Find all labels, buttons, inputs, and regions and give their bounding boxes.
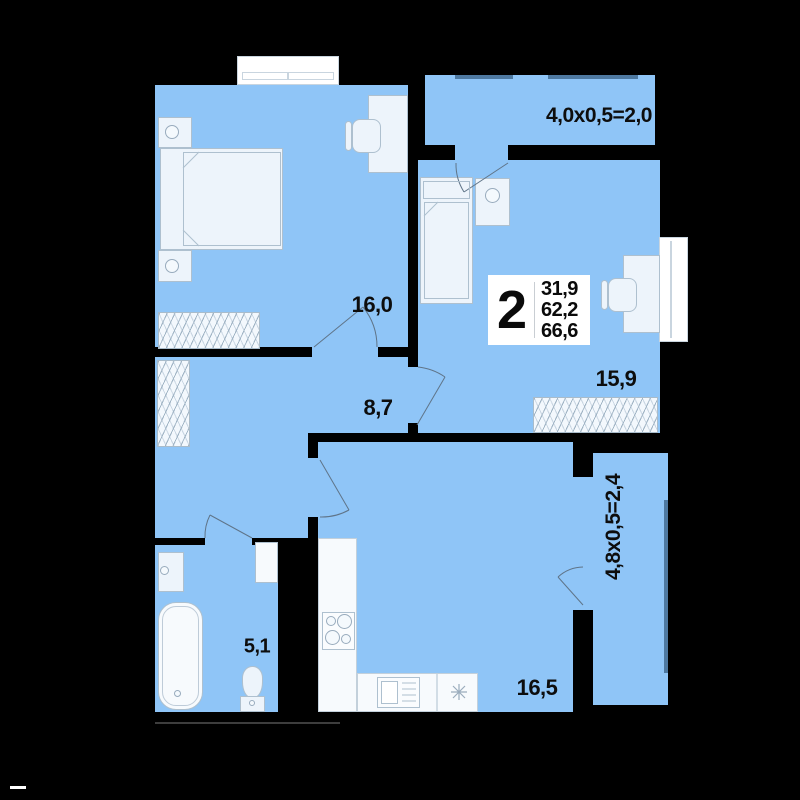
opening-balcony-right-door xyxy=(571,477,595,610)
floor-plan: 16,0 15,9 8,7 5,1 16,5 4,0x0,5=2,0 4,8x0… xyxy=(0,0,800,800)
chair xyxy=(608,278,637,312)
opening-bedroom-door xyxy=(312,343,378,359)
apartment-area-value: 62,2 xyxy=(541,300,578,321)
unit-info-box: 2 31,9 62,2 66,6 xyxy=(488,275,590,345)
burner-icon xyxy=(337,614,352,629)
drain-icon xyxy=(174,690,181,697)
chair-back xyxy=(345,121,352,151)
lamp-icon xyxy=(165,259,179,273)
opening-living-door xyxy=(306,458,320,517)
chair xyxy=(352,119,381,153)
window-frame xyxy=(670,241,672,338)
label-bathroom-area: 5,1 xyxy=(244,636,270,659)
label-balcony-right-dimensions: 4,8x0,5=2,4 xyxy=(602,474,626,580)
burner-icon xyxy=(341,634,351,644)
toilet-bowl xyxy=(242,666,263,698)
window-bedroom2 xyxy=(659,237,688,342)
chair-back xyxy=(601,280,608,310)
toilet-button-icon xyxy=(249,700,255,706)
oven-door xyxy=(381,681,398,704)
lamp-icon xyxy=(165,125,179,139)
window-bedroom xyxy=(237,56,339,85)
single-bed xyxy=(420,177,473,304)
label-kitchen-living-area: 16,5 xyxy=(517,675,558,701)
opening-bedroom2-door xyxy=(406,367,420,423)
label-balcony-top-dimensions: 4,0x0,5=2,0 xyxy=(546,104,652,128)
wardrobe xyxy=(533,397,658,433)
rooms-count: 2 xyxy=(488,275,534,345)
burner-icon xyxy=(326,616,336,626)
section-line xyxy=(155,722,340,724)
total-area-value: 66,6 xyxy=(541,321,578,342)
opening-bathroom-door xyxy=(205,538,252,547)
living-area-value: 31,9 xyxy=(541,279,578,300)
opening-balcony-top-door xyxy=(455,142,508,162)
railing-segment xyxy=(664,500,668,673)
burner-icon xyxy=(325,630,340,645)
double-bed xyxy=(160,148,283,250)
vent-shaft xyxy=(255,542,278,583)
label-bedroom-area: 16,0 xyxy=(352,292,393,318)
label-hallway-area: 8,7 xyxy=(363,395,392,421)
wardrobe xyxy=(157,360,190,447)
corner-mark xyxy=(10,786,26,789)
railing-segment xyxy=(548,75,638,79)
label-bedroom2-area: 15,9 xyxy=(596,366,637,392)
faucet-icon xyxy=(160,566,169,575)
railing-segment xyxy=(455,75,513,79)
wardrobe xyxy=(158,312,260,349)
window-frame-divider xyxy=(287,72,289,80)
lamp-icon xyxy=(485,188,500,203)
